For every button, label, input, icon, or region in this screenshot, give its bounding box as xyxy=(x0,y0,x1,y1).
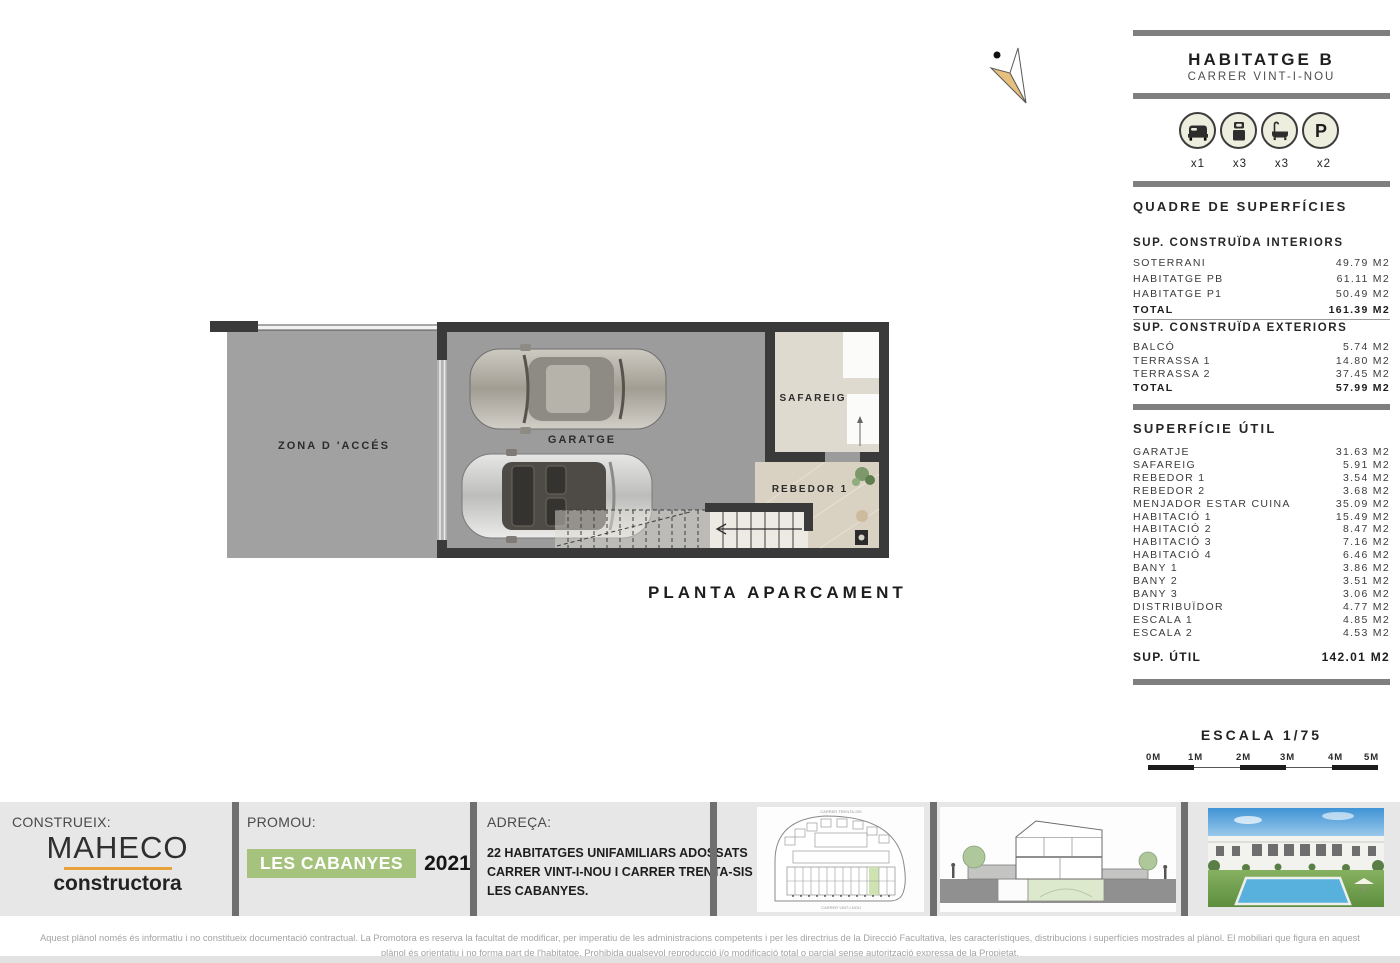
table-row: REBEDOR 23.68 M2 xyxy=(1133,485,1390,498)
constructor-label: CONSTRUEIX: xyxy=(12,814,111,830)
rebedor-label: REBEDOR 1 xyxy=(762,484,858,495)
scale-tick: 1M xyxy=(1188,752,1203,763)
table-row: HABITACIÓ 46.46 M2 xyxy=(1133,549,1390,562)
table-row: HABITACIÓ 37.16 M2 xyxy=(1133,536,1390,549)
surfaces-table-title: QUADRE DE SUPERFÍCIES xyxy=(1133,199,1348,214)
table-row: BALCÓ5.74 M2 xyxy=(1133,341,1390,355)
util-heading: SUPERFÍCIE ÚTIL xyxy=(1133,421,1277,436)
scale-tick: 2M xyxy=(1236,752,1251,763)
address-label: ADREÇA: xyxy=(487,814,551,830)
scale-tick: 0M xyxy=(1146,752,1161,763)
north-arrow-icon xyxy=(988,45,1036,107)
count-label: x1 xyxy=(1179,158,1217,170)
unit-icons: P xyxy=(1179,112,1339,149)
divider xyxy=(1133,181,1390,187)
count-label: x2 xyxy=(1305,158,1343,170)
interiors-rows: SOTERRANI49.79 M2 HABITATGE PB61.11 M2 H… xyxy=(1133,256,1390,318)
divider xyxy=(1181,802,1188,916)
single-bed-icon xyxy=(1220,112,1257,149)
site-plan-bottom-street-label: CARRER VINT-I-NOU xyxy=(821,905,861,910)
count-label: x3 xyxy=(1263,158,1301,170)
info-sidebar: HABITATGE B CARRER VINT-I-NOU xyxy=(1133,0,1390,800)
promoter-year: 2021 xyxy=(424,852,471,876)
table-row: TERRASSA 237.45 M2 xyxy=(1133,368,1390,382)
table-row: ESCALA 24.53 M2 xyxy=(1133,627,1390,640)
garatge-label: GARATGE xyxy=(518,434,646,446)
table-row: BANY 33.06 M2 xyxy=(1133,588,1390,601)
interiors-heading: SUP. CONSTRUÏDA INTERIORS xyxy=(1133,237,1344,249)
constructor-sub: constructora xyxy=(30,872,205,895)
disclaimer-line: Aquest plànol només és informatiu i no c… xyxy=(0,931,1400,946)
exteriors-heading: SUP. CONSTRUÏDA EXTERIORS xyxy=(1133,322,1347,334)
scale-bar: 0M 1M 2M 3M 4M 5M xyxy=(1148,752,1378,774)
table-row: SOTERRANI49.79 M2 xyxy=(1133,256,1390,272)
parking-icon: P xyxy=(1302,112,1339,149)
table-row: BANY 23.51 M2 xyxy=(1133,575,1390,588)
divider xyxy=(1133,93,1390,99)
table-row: REBEDOR 13.54 M2 xyxy=(1133,472,1390,485)
count-label: x3 xyxy=(1221,158,1259,170)
unit-icon-counts: x1 x3 x3 x2 xyxy=(1179,158,1343,170)
zona-acces-label: ZONA D 'ACCÉS xyxy=(264,440,404,452)
render-image xyxy=(1208,808,1384,907)
table-row: MENJADOR ESTAR CUINA35.09 M2 xyxy=(1133,498,1390,511)
scale-tick: 3M xyxy=(1280,752,1295,763)
divider xyxy=(232,802,239,916)
section-drawing-thumbnail xyxy=(940,807,1176,912)
bathtub-icon xyxy=(1261,112,1298,149)
logo-rule xyxy=(64,867,172,870)
table-row: HABITATGE P150.49 M2 xyxy=(1133,287,1390,303)
plan-title: PLANTA APARCAMENT xyxy=(648,583,907,603)
util-total: SUP. ÚTIL142.01 M2 xyxy=(1133,650,1390,664)
promoter-label: PROMOU: xyxy=(247,814,316,830)
scale-tick: 5M xyxy=(1364,752,1379,763)
unit-title: HABITATGE B xyxy=(1133,50,1390,70)
divider xyxy=(1133,679,1390,685)
constructor-logo: MAHECO constructora xyxy=(30,832,205,895)
divider xyxy=(470,802,477,916)
site-plan-thumbnail: CARRER TRENTA-SIS CARRER VINT-I-NOU xyxy=(757,807,924,912)
table-row: HABITACIÓ 28.47 M2 xyxy=(1133,523,1390,536)
table-row: HABITACIÓ 115.49 M2 xyxy=(1133,511,1390,524)
table-row: BANY 13.86 M2 xyxy=(1133,562,1390,575)
divider xyxy=(1133,30,1390,36)
util-rows: GARATJE31.63 M2 SAFAREIG5.91 M2 REBEDOR … xyxy=(1133,446,1390,640)
safareig-label: SAFAREIG xyxy=(768,393,858,404)
table-row: ESCALA 14.85 M2 xyxy=(1133,614,1390,627)
table-row: GARATJE31.63 M2 xyxy=(1133,446,1390,459)
table-total-row: SUP. ÚTIL142.01 M2 xyxy=(1133,650,1390,664)
table-row: TERRASSA 114.80 M2 xyxy=(1133,355,1390,369)
scale-tick: 4M xyxy=(1328,752,1343,763)
svg-text:P: P xyxy=(1314,121,1326,141)
unit-subtitle: CARRER VINT-I-NOU xyxy=(1133,71,1390,83)
table-total-row: TOTAL161.39 M2 xyxy=(1133,303,1390,319)
site-plan-top-street-label: CARRER TRENTA-SIS xyxy=(820,809,862,814)
divider xyxy=(1133,319,1390,320)
bottom-strip xyxy=(0,956,1400,963)
promoter-name: LES CABANYES xyxy=(247,849,416,878)
divider xyxy=(1133,404,1390,410)
plan-sheet: ZONA D 'ACCÉS GARATGE SAFAREIG REBEDOR 1… xyxy=(0,0,1400,963)
double-bed-icon xyxy=(1179,112,1216,149)
footer-band: CONSTRUEIX: MAHECO constructora PROMOU: … xyxy=(0,802,1400,916)
divider xyxy=(930,802,937,916)
divider xyxy=(710,802,717,916)
promoter-logo: LES CABANYES 2021 xyxy=(247,849,471,878)
constructor-name: MAHECO xyxy=(30,832,205,864)
table-row: SAFAREIG5.91 M2 xyxy=(1133,459,1390,472)
table-row: HABITATGE PB61.11 M2 xyxy=(1133,272,1390,288)
table-row: DISTRIBUÏDOR4.77 M2 xyxy=(1133,601,1390,614)
scale-label: ESCALA 1/75 xyxy=(1133,727,1390,743)
table-total-row: TOTAL57.99 M2 xyxy=(1133,382,1390,396)
exteriors-rows: BALCÓ5.74 M2 TERRASSA 114.80 M2 TERRASSA… xyxy=(1133,341,1390,395)
